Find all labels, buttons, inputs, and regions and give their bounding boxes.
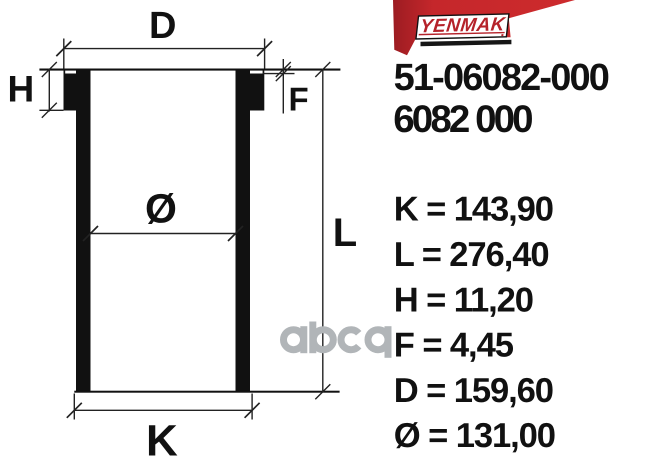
svg-text:51-06082-000: 51-06082-000 [394, 57, 609, 99]
svg-text:H: H [8, 68, 35, 109]
svg-text:F: F [289, 81, 309, 118]
svg-text:H = 11,20: H = 11,20 [394, 281, 533, 319]
svg-text:K = 143,90: K = 143,90 [394, 191, 553, 229]
svg-text:D: D [149, 5, 176, 47]
svg-text:D = 159,60: D = 159,60 [394, 372, 553, 410]
svg-text:L = 276,40: L = 276,40 [394, 236, 549, 274]
svg-text:L: L [333, 211, 357, 255]
svg-text:K: K [146, 417, 178, 457]
svg-text:6082 000: 6082 000 [393, 98, 532, 141]
svg-text:YENMAK: YENMAK [419, 14, 507, 37]
svg-text:F = 4,45: F = 4,45 [394, 327, 514, 365]
svg-text:Ø = 131,00: Ø = 131,00 [394, 417, 555, 455]
svg-text:Ø: Ø [145, 185, 177, 231]
